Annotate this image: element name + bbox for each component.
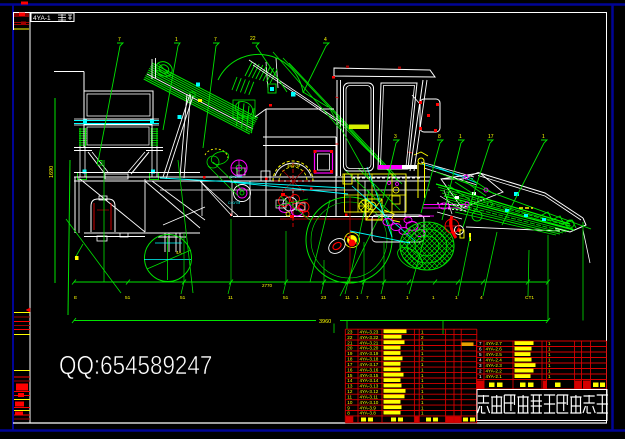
svg-text:1: 1 bbox=[421, 400, 424, 405]
svg-text:4YA-3.12: 4YA-3.12 bbox=[360, 389, 379, 394]
svg-text:51: 51 bbox=[283, 295, 289, 301]
svg-text:1: 1 bbox=[421, 367, 424, 372]
svg-text:11: 11 bbox=[381, 295, 386, 301]
svg-text:1: 1 bbox=[548, 369, 551, 374]
svg-text:1: 1 bbox=[455, 295, 458, 301]
svg-text:11: 11 bbox=[228, 295, 233, 301]
svg-text:CT1: CT1 bbox=[525, 295, 534, 301]
svg-text:1: 1 bbox=[406, 295, 409, 301]
svg-text:18: 18 bbox=[347, 357, 353, 362]
svg-text:7: 7 bbox=[118, 37, 121, 43]
svg-text:17: 17 bbox=[488, 134, 494, 140]
svg-text:8: 8 bbox=[347, 411, 350, 416]
svg-text:4YA-2.5: 4YA-2.5 bbox=[486, 352, 503, 357]
svg-text:1: 1 bbox=[421, 405, 424, 410]
svg-text:7: 7 bbox=[366, 295, 369, 301]
svg-text:1: 1 bbox=[479, 374, 482, 379]
svg-text:1: 1 bbox=[548, 363, 551, 368]
svg-text:1: 1 bbox=[175, 37, 178, 43]
svg-text:4YA-2.4: 4YA-2.4 bbox=[486, 358, 503, 363]
svg-text:4YA-3.16: 4YA-3.16 bbox=[360, 367, 379, 372]
svg-text:1: 1 bbox=[421, 389, 424, 394]
svg-text:4YA-3.18: 4YA-3.18 bbox=[360, 357, 379, 362]
svg-text:1: 1 bbox=[548, 352, 551, 357]
svg-text:1: 1 bbox=[542, 134, 545, 140]
svg-text:4YA-2.1: 4YA-2.1 bbox=[486, 374, 503, 379]
svg-text:5: 5 bbox=[479, 352, 482, 357]
svg-text:22: 22 bbox=[347, 335, 353, 340]
svg-text:1: 1 bbox=[421, 384, 424, 389]
svg-text:10: 10 bbox=[347, 400, 353, 405]
svg-text:19: 19 bbox=[347, 351, 353, 356]
svg-text:QQ:654589247: QQ:654589247 bbox=[59, 352, 212, 381]
svg-text:2770: 2770 bbox=[262, 283, 273, 288]
svg-text:1: 1 bbox=[421, 351, 424, 356]
svg-text:11: 11 bbox=[347, 395, 352, 400]
svg-text:2: 2 bbox=[421, 357, 424, 362]
svg-text:7: 7 bbox=[214, 37, 217, 43]
svg-text:1: 1 bbox=[421, 362, 424, 367]
svg-text:2: 2 bbox=[479, 369, 482, 374]
svg-text:C=0/7M: C=0/7M bbox=[228, 201, 240, 205]
svg-text:9: 9 bbox=[347, 405, 350, 410]
svg-text:23: 23 bbox=[321, 295, 327, 301]
svg-text:3960: 3960 bbox=[319, 319, 331, 325]
svg-text:E: E bbox=[74, 295, 77, 301]
svg-text:4: 4 bbox=[480, 295, 483, 301]
svg-text:4YA-2.3: 4YA-2.3 bbox=[486, 363, 503, 368]
svg-text:4YA-3.22: 4YA-3.22 bbox=[360, 335, 379, 340]
svg-text:4YA-1: 4YA-1 bbox=[33, 15, 51, 22]
svg-text:4: 4 bbox=[324, 37, 327, 43]
svg-text:4YA-3.9: 4YA-3.9 bbox=[360, 405, 377, 410]
svg-text:13: 13 bbox=[347, 384, 353, 389]
svg-text:4YA-3.14: 4YA-3.14 bbox=[360, 378, 379, 383]
svg-text:51: 51 bbox=[180, 295, 186, 301]
svg-text:17: 17 bbox=[347, 362, 353, 367]
svg-text:2: 2 bbox=[421, 335, 424, 340]
svg-text:1: 1 bbox=[548, 341, 551, 346]
svg-text:1: 1 bbox=[356, 295, 359, 301]
svg-text:1: 1 bbox=[421, 340, 424, 345]
svg-text:350/7M: 350/7M bbox=[287, 163, 300, 168]
svg-text:1: 1 bbox=[459, 134, 462, 140]
svg-text:1: 1 bbox=[421, 378, 424, 383]
svg-text:4YA-3.11: 4YA-3.11 bbox=[360, 395, 379, 400]
svg-text:20: 20 bbox=[347, 346, 353, 351]
svg-text:1: 1 bbox=[421, 411, 424, 416]
svg-text:12: 12 bbox=[347, 389, 353, 394]
svg-text:51: 51 bbox=[125, 295, 131, 301]
svg-text:4: 4 bbox=[479, 358, 482, 363]
svg-text:8: 8 bbox=[438, 134, 441, 140]
svg-text:1690: 1690 bbox=[49, 166, 55, 178]
svg-text:4YA-2.6: 4YA-2.6 bbox=[486, 347, 503, 352]
svg-text:4YA-3.10: 4YA-3.10 bbox=[360, 400, 379, 405]
svg-text:1: 1 bbox=[421, 346, 424, 351]
svg-text:4YA-3.13: 4YA-3.13 bbox=[360, 384, 379, 389]
svg-text:4A: 4A bbox=[176, 250, 182, 255]
svg-text:3: 3 bbox=[394, 134, 397, 140]
svg-text:21: 21 bbox=[347, 340, 353, 345]
svg-text:4YA-2.2: 4YA-2.2 bbox=[486, 369, 503, 374]
svg-text:22: 22 bbox=[250, 36, 256, 42]
svg-text:1: 1 bbox=[421, 395, 424, 400]
svg-text:4YA-3.19: 4YA-3.19 bbox=[360, 351, 379, 356]
svg-text:11: 11 bbox=[345, 295, 350, 301]
svg-text:4YA-3.21: 4YA-3.21 bbox=[360, 340, 379, 345]
svg-text:3: 3 bbox=[479, 363, 482, 368]
svg-text:4YA-2.7: 4YA-2.7 bbox=[486, 341, 503, 346]
svg-text:14: 14 bbox=[347, 378, 353, 383]
svg-text:7: 7 bbox=[479, 341, 482, 346]
svg-text:1: 1 bbox=[421, 329, 424, 334]
svg-text:4YA-3.17: 4YA-3.17 bbox=[360, 362, 379, 367]
svg-text:4YA-3.8: 4YA-3.8 bbox=[360, 411, 377, 416]
svg-text:1: 1 bbox=[548, 347, 551, 352]
svg-text:4YA-3.15: 4YA-3.15 bbox=[360, 373, 379, 378]
svg-text:1: 1 bbox=[432, 295, 435, 301]
svg-text:C=0/7M: C=0/7M bbox=[230, 175, 242, 179]
svg-text:1: 1 bbox=[421, 373, 424, 378]
svg-text:16: 16 bbox=[347, 367, 353, 372]
svg-text:1: 1 bbox=[548, 358, 551, 363]
svg-text:4YA-3.23: 4YA-3.23 bbox=[360, 329, 379, 334]
svg-text:1: 1 bbox=[548, 374, 551, 379]
svg-text:6: 6 bbox=[479, 347, 482, 352]
svg-text:15: 15 bbox=[347, 373, 353, 378]
svg-text:4YA-3.20: 4YA-3.20 bbox=[360, 346, 379, 351]
svg-text:23: 23 bbox=[347, 329, 353, 334]
